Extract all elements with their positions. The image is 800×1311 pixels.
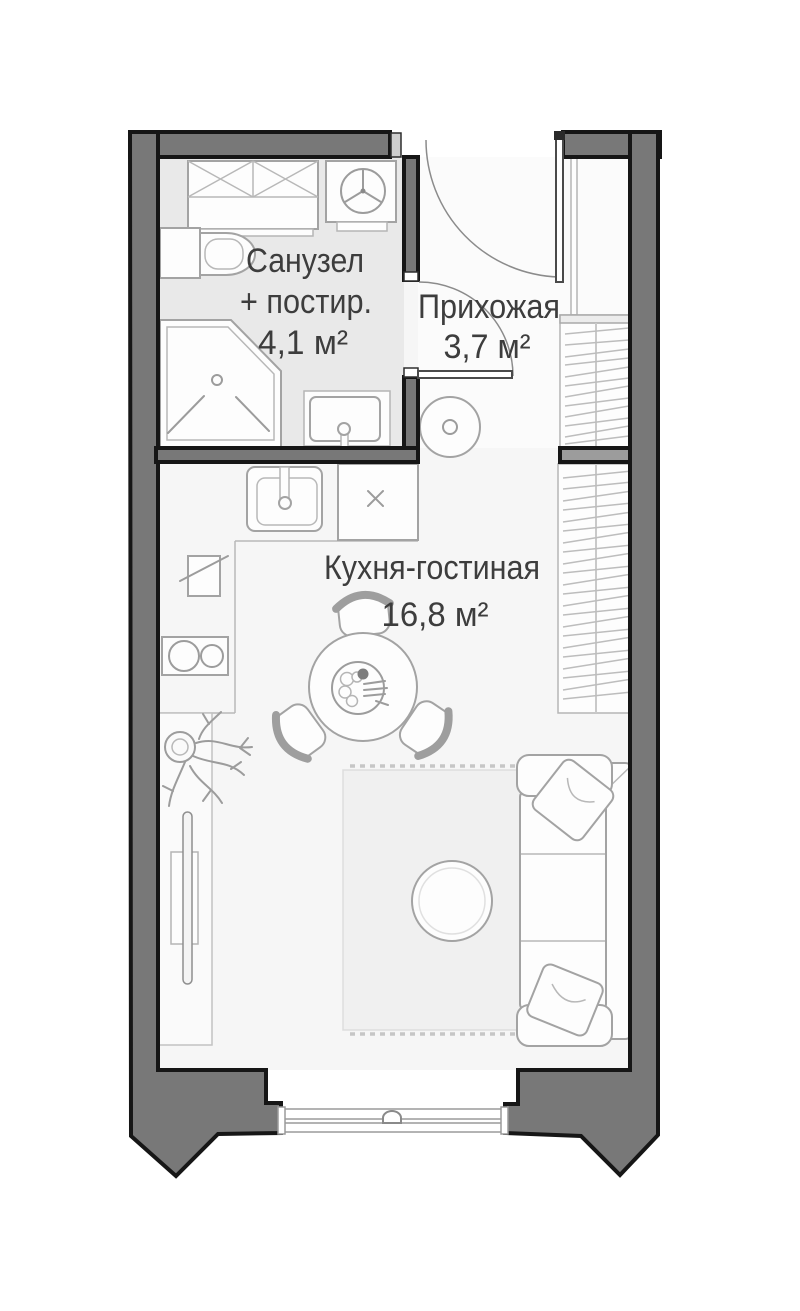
window-end-cap	[501, 1107, 508, 1134]
washer-hub	[361, 189, 366, 194]
closet-side-panel	[571, 157, 577, 315]
kitchen-living-area: 16,8 м²	[382, 596, 489, 634]
wall-bathroom-east-lower	[404, 377, 418, 448]
food-item	[347, 696, 358, 707]
door-jamb	[391, 133, 401, 157]
wardrobe-icon	[560, 315, 632, 450]
coffee-table-top	[412, 861, 492, 941]
toilet-cistern	[160, 228, 200, 278]
window-end-cap	[278, 1107, 285, 1134]
toilet-icon	[160, 228, 255, 278]
wall-wardrobe-divider	[560, 448, 630, 462]
sink-faucet	[338, 423, 350, 435]
window-handle	[383, 1111, 401, 1123]
hob-icon	[338, 464, 418, 540]
door-hinge	[554, 131, 565, 140]
bathroom-label-line2: + постир.	[240, 283, 372, 321]
door-jamb	[404, 368, 418, 377]
pouf-icon	[420, 397, 480, 457]
kitchen-faucet	[279, 497, 291, 509]
kitchen-sink-icon	[247, 467, 322, 531]
kitchen-living-label: Кухня-гостиная	[324, 549, 540, 587]
washer-tab	[337, 222, 387, 231]
sofa-icon	[517, 755, 633, 1046]
tv-screen	[183, 812, 192, 984]
wall-top-left	[130, 132, 390, 157]
wardrobe-icon	[558, 464, 635, 713]
wardrobe-door-track	[560, 315, 632, 323]
door-leaf	[556, 138, 563, 282]
wall-bathroom-east-upper	[404, 157, 418, 280]
bathroom-label: Санузел	[246, 242, 364, 280]
hallway-area: 3,7 м²	[444, 328, 531, 366]
floor-plan: Санузел + постир. 4,1 м² Прихожая 3,7 м²…	[0, 0, 800, 1311]
shelving-icon	[188, 161, 318, 236]
coffee-table-icon	[412, 861, 492, 941]
cutting-board-icon	[180, 556, 228, 596]
floor-plan-page: Санузел + постир. 4,1 м² Прихожая 3,7 м²…	[0, 0, 800, 1311]
bathroom-sink-icon	[304, 391, 390, 447]
cooktop-body	[162, 637, 228, 675]
kitchen-faucet-stem	[280, 467, 289, 499]
food-item-dark	[358, 669, 369, 680]
pouf-body	[420, 397, 480, 457]
window-inner-frame	[281, 1123, 505, 1132]
hallway-label: Прихожая	[418, 288, 560, 326]
window	[278, 1107, 508, 1134]
washing-machine-icon	[326, 161, 396, 231]
bathroom-area: 4,1 м²	[258, 324, 348, 362]
door-leaf	[418, 371, 512, 378]
wall-bathroom-bottom	[156, 448, 418, 462]
door-jamb	[404, 272, 418, 281]
cooktop-icon	[162, 637, 228, 675]
food-item	[341, 673, 354, 686]
table-top	[309, 633, 417, 741]
